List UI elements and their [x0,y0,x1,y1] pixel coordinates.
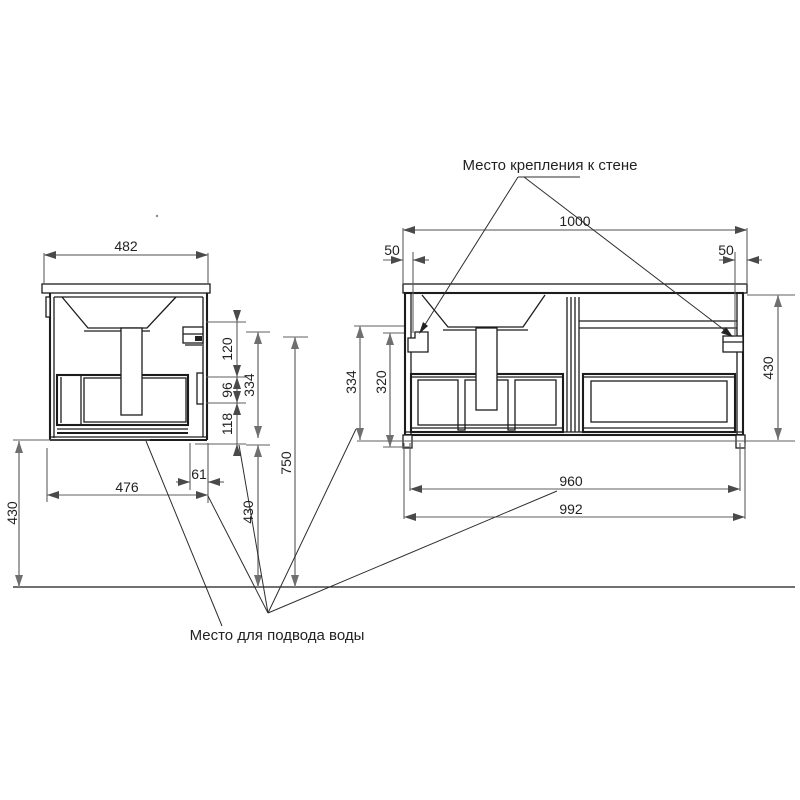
arrow-430l-b [15,575,23,587]
front-left-panel-3 [515,380,556,425]
arrow-61-r [208,478,220,486]
dim-50-left: 50 [384,242,400,258]
side-drain-pipe [121,328,142,415]
leader-water-a [208,496,268,613]
arrow-430l-t [15,441,23,453]
dim-960: 960 [559,473,583,489]
leader-water-e [146,441,222,626]
dim-476: 476 [115,479,139,495]
arrow-960-l [410,485,422,493]
arrow-334l-t [254,332,262,344]
drawing-canvas: Место крепления к стене Место для подвод… [0,0,800,800]
arrow-482-r [196,251,208,259]
front-right-panel [591,381,727,422]
arrow-482-l [44,251,56,259]
arrow-430r-b [774,428,782,440]
front-drain-pipe [476,328,497,410]
dim-482: 482 [114,238,138,254]
wall-mount-label: Место крепления к стене [462,157,637,174]
arrow-476-r [196,491,208,499]
side-view [42,284,210,440]
dim-50-right: 50 [718,242,734,258]
front-right-drawer [583,374,735,432]
dim-96: 96 [219,382,235,398]
side-countertop [42,284,210,293]
arrow-750-b [291,575,299,587]
arrow-chain-377a [233,365,241,377]
side-supply-zone-marker [197,373,203,404]
dim-992: 992 [559,501,583,517]
water-supply-label: Место для подвода воды [190,627,365,644]
arrow-1000-r [735,226,747,234]
arrow-334l-b [254,426,262,438]
front-countertop [403,284,747,293]
side-basin [62,297,176,328]
dim-430-mid: 430 [240,500,256,524]
artifact-dot [156,215,158,217]
dim-430-right: 430 [760,356,776,380]
arrow-430r-t [774,295,782,307]
leader-wall-right [524,177,731,335]
side-bracket-screw [195,336,202,341]
side-door-tab [46,297,50,317]
arrow-430m-t [254,445,262,457]
front-body [405,293,743,435]
dim-1000: 1000 [559,213,590,229]
dim-118: 118 [219,413,235,436]
dim-334-front: 334 [343,370,359,394]
leader-water-b [239,445,268,613]
arrow-992-r [733,513,745,521]
dim-430-left: 430 [4,501,20,525]
arrow-61-l [178,478,190,486]
arrow-476-l [47,491,59,499]
dim-750: 750 [278,451,294,475]
arrow-750-t [291,337,299,349]
dim-120: 120 [219,337,235,361]
dim-320-front: 320 [373,370,389,394]
arrow-334f-b [356,428,364,440]
arrow-320f-t [386,333,394,345]
dim-61: 61 [191,466,207,482]
technical-drawing-vanity: Место крепления к стене Место для подвод… [0,0,800,800]
leader-water-d [268,491,557,613]
leaders [146,177,733,626]
leader-wall-left [421,177,518,331]
arrow-50r-b [747,256,759,264]
arrow-chain-top [233,310,241,322]
front-view [403,284,747,448]
dim-334-side: 334 [241,373,257,397]
front-left-panel-1 [418,380,458,425]
arrow-430m-b [254,575,262,587]
arrow-960-r [728,485,740,493]
arrow-1000-l [403,226,415,234]
arrow-992-l [404,513,416,521]
arrow-50l-b [413,256,425,264]
arrow-334f-t [356,326,364,338]
front-right-bracket [723,336,743,352]
